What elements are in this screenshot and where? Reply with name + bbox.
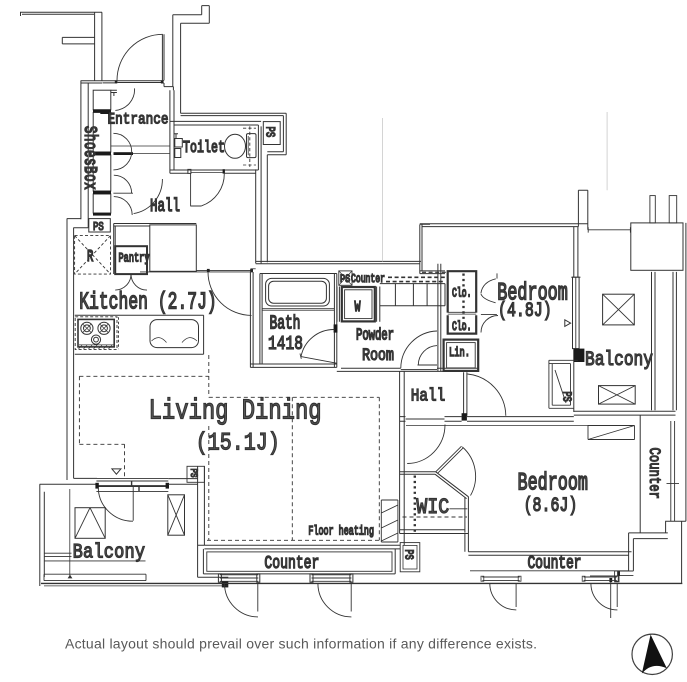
svg-text:Counter: Counter [644,448,662,500]
svg-text:Clo.: Clo. [452,320,472,334]
svg-text:R: R [87,249,93,267]
svg-text:WIC: WIC [416,496,449,521]
svg-text:Counter: Counter [264,553,319,574]
svg-text:Toilet: Toilet [183,139,225,158]
svg-text:(8.6J): (8.6J) [524,495,578,518]
svg-text:Entrance: Entrance [108,111,169,129]
svg-text:Actual layout should prevail o: Actual layout should prevail over such i… [65,636,537,652]
svg-text:Balcony: Balcony [585,350,653,372]
svg-text:(4.8J): (4.8J) [498,300,552,323]
svg-text:PS: PS [93,221,104,235]
svg-text:Living Dining: Living Dining [149,395,322,428]
svg-text:Counter: Counter [351,273,385,287]
svg-text:PS: PS [188,469,199,478]
svg-text:Floor heating: Floor heating [308,525,374,539]
svg-text:PS: PS [559,392,573,402]
svg-text:Balcony: Balcony [73,540,146,564]
svg-text:Powder: Powder [356,326,394,345]
svg-text:Counter: Counter [528,553,582,574]
svg-text:Lin.: Lin. [449,346,470,360]
svg-text:Bath: Bath [270,312,301,334]
svg-text:Room: Room [362,345,394,365]
svg-text:Kitchen (2.7J): Kitchen (2.7J) [79,290,217,317]
svg-text:PS: PS [401,550,415,560]
svg-text:Hall: Hall [411,385,446,406]
svg-text:PS: PS [262,127,276,138]
svg-text:1418: 1418 [268,334,303,355]
svg-text:Clo.: Clo. [452,287,472,301]
svg-text:PS: PS [340,274,350,287]
svg-text:Pantry: Pantry [119,252,150,266]
svg-text:W: W [355,298,361,316]
svg-text:ShoesBox: ShoesBox [79,126,100,190]
svg-text:Hall: Hall [150,196,180,217]
svg-text:Bedroom: Bedroom [518,470,589,498]
